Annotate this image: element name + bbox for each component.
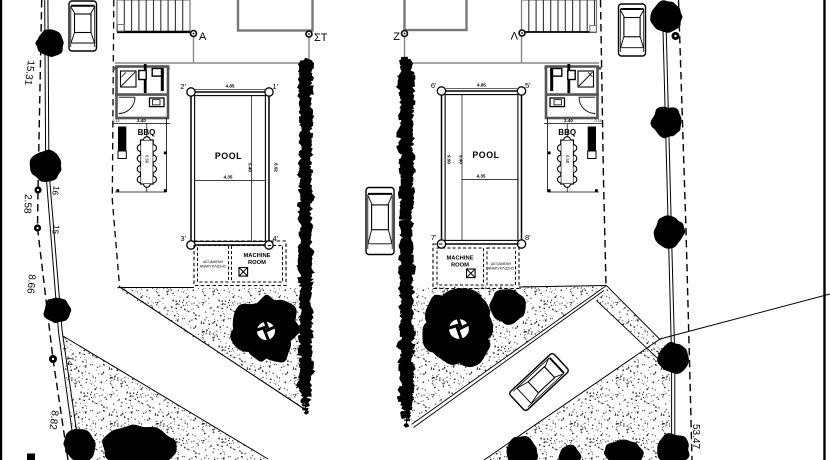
svg-text:POOL: POOL xyxy=(215,151,242,161)
svg-text:9.90: 9.90 xyxy=(447,155,452,164)
svg-text:53.47: 53.47 xyxy=(690,424,701,449)
svg-text:4.85: 4.85 xyxy=(477,83,486,88)
svg-text:ΣΤ: ΣΤ xyxy=(314,32,328,44)
svg-text:8.66: 8.66 xyxy=(24,274,37,295)
svg-text:8.92: 8.92 xyxy=(274,163,279,172)
svg-text:4.35: 4.35 xyxy=(477,174,486,179)
svg-text:ROOM: ROOM xyxy=(451,263,469,269)
svg-text:POOL: POOL xyxy=(472,150,499,160)
svg-text:5': 5' xyxy=(525,81,531,90)
svg-text:16: 16 xyxy=(50,185,62,196)
svg-text:3.40: 3.40 xyxy=(564,118,573,123)
svg-text:0.15: 0.15 xyxy=(113,119,120,123)
svg-text:5.40: 5.40 xyxy=(248,163,253,172)
svg-text:2.58: 2.58 xyxy=(21,194,33,214)
svg-text:4.35: 4.35 xyxy=(224,175,233,180)
svg-text:1': 1' xyxy=(273,82,279,91)
svg-text:9.40: 9.40 xyxy=(459,155,464,164)
svg-text:3': 3' xyxy=(180,234,186,243)
svg-text:4': 4' xyxy=(273,234,279,243)
svg-text:6': 6' xyxy=(431,81,437,90)
svg-text:A: A xyxy=(199,31,207,43)
svg-text:8': 8' xyxy=(525,233,531,242)
svg-text:Z: Z xyxy=(393,31,400,43)
svg-text:ROOM: ROOM xyxy=(248,260,266,266)
svg-text:ΑΝΑΚΥΚΛΩΣΗΣ: ΑΝΑΚΥΚΛΩΣΗΣ xyxy=(488,267,515,271)
svg-text:14: 14 xyxy=(65,355,77,366)
svg-text:0.15: 0.15 xyxy=(595,119,602,123)
svg-text:Λ: Λ xyxy=(511,31,519,43)
svg-text:MACHINE: MACHINE xyxy=(243,253,270,259)
svg-text:6.50: 6.50 xyxy=(565,155,570,164)
svg-text:3.40: 3.40 xyxy=(137,118,146,123)
svg-text:MACHINE: MACHINE xyxy=(446,256,473,262)
svg-text:ΔΕΞΑΜΕΝΗ: ΔΕΞΑΜΕΝΗ xyxy=(203,260,224,264)
svg-text:7': 7' xyxy=(431,233,437,242)
svg-text:15: 15 xyxy=(50,224,62,235)
svg-text:2': 2' xyxy=(180,82,186,91)
svg-text:6.50: 6.50 xyxy=(145,155,150,164)
svg-text:ΑΝΑΚΥΚΛΩΣΗΣ: ΑΝΑΚΥΚΛΩΣΗΣ xyxy=(200,265,227,269)
svg-text:4.85: 4.85 xyxy=(226,84,235,89)
svg-text:ΔΕΞΑΜΕΝΗ: ΔΕΞΑΜΕΝΗ xyxy=(491,262,512,266)
